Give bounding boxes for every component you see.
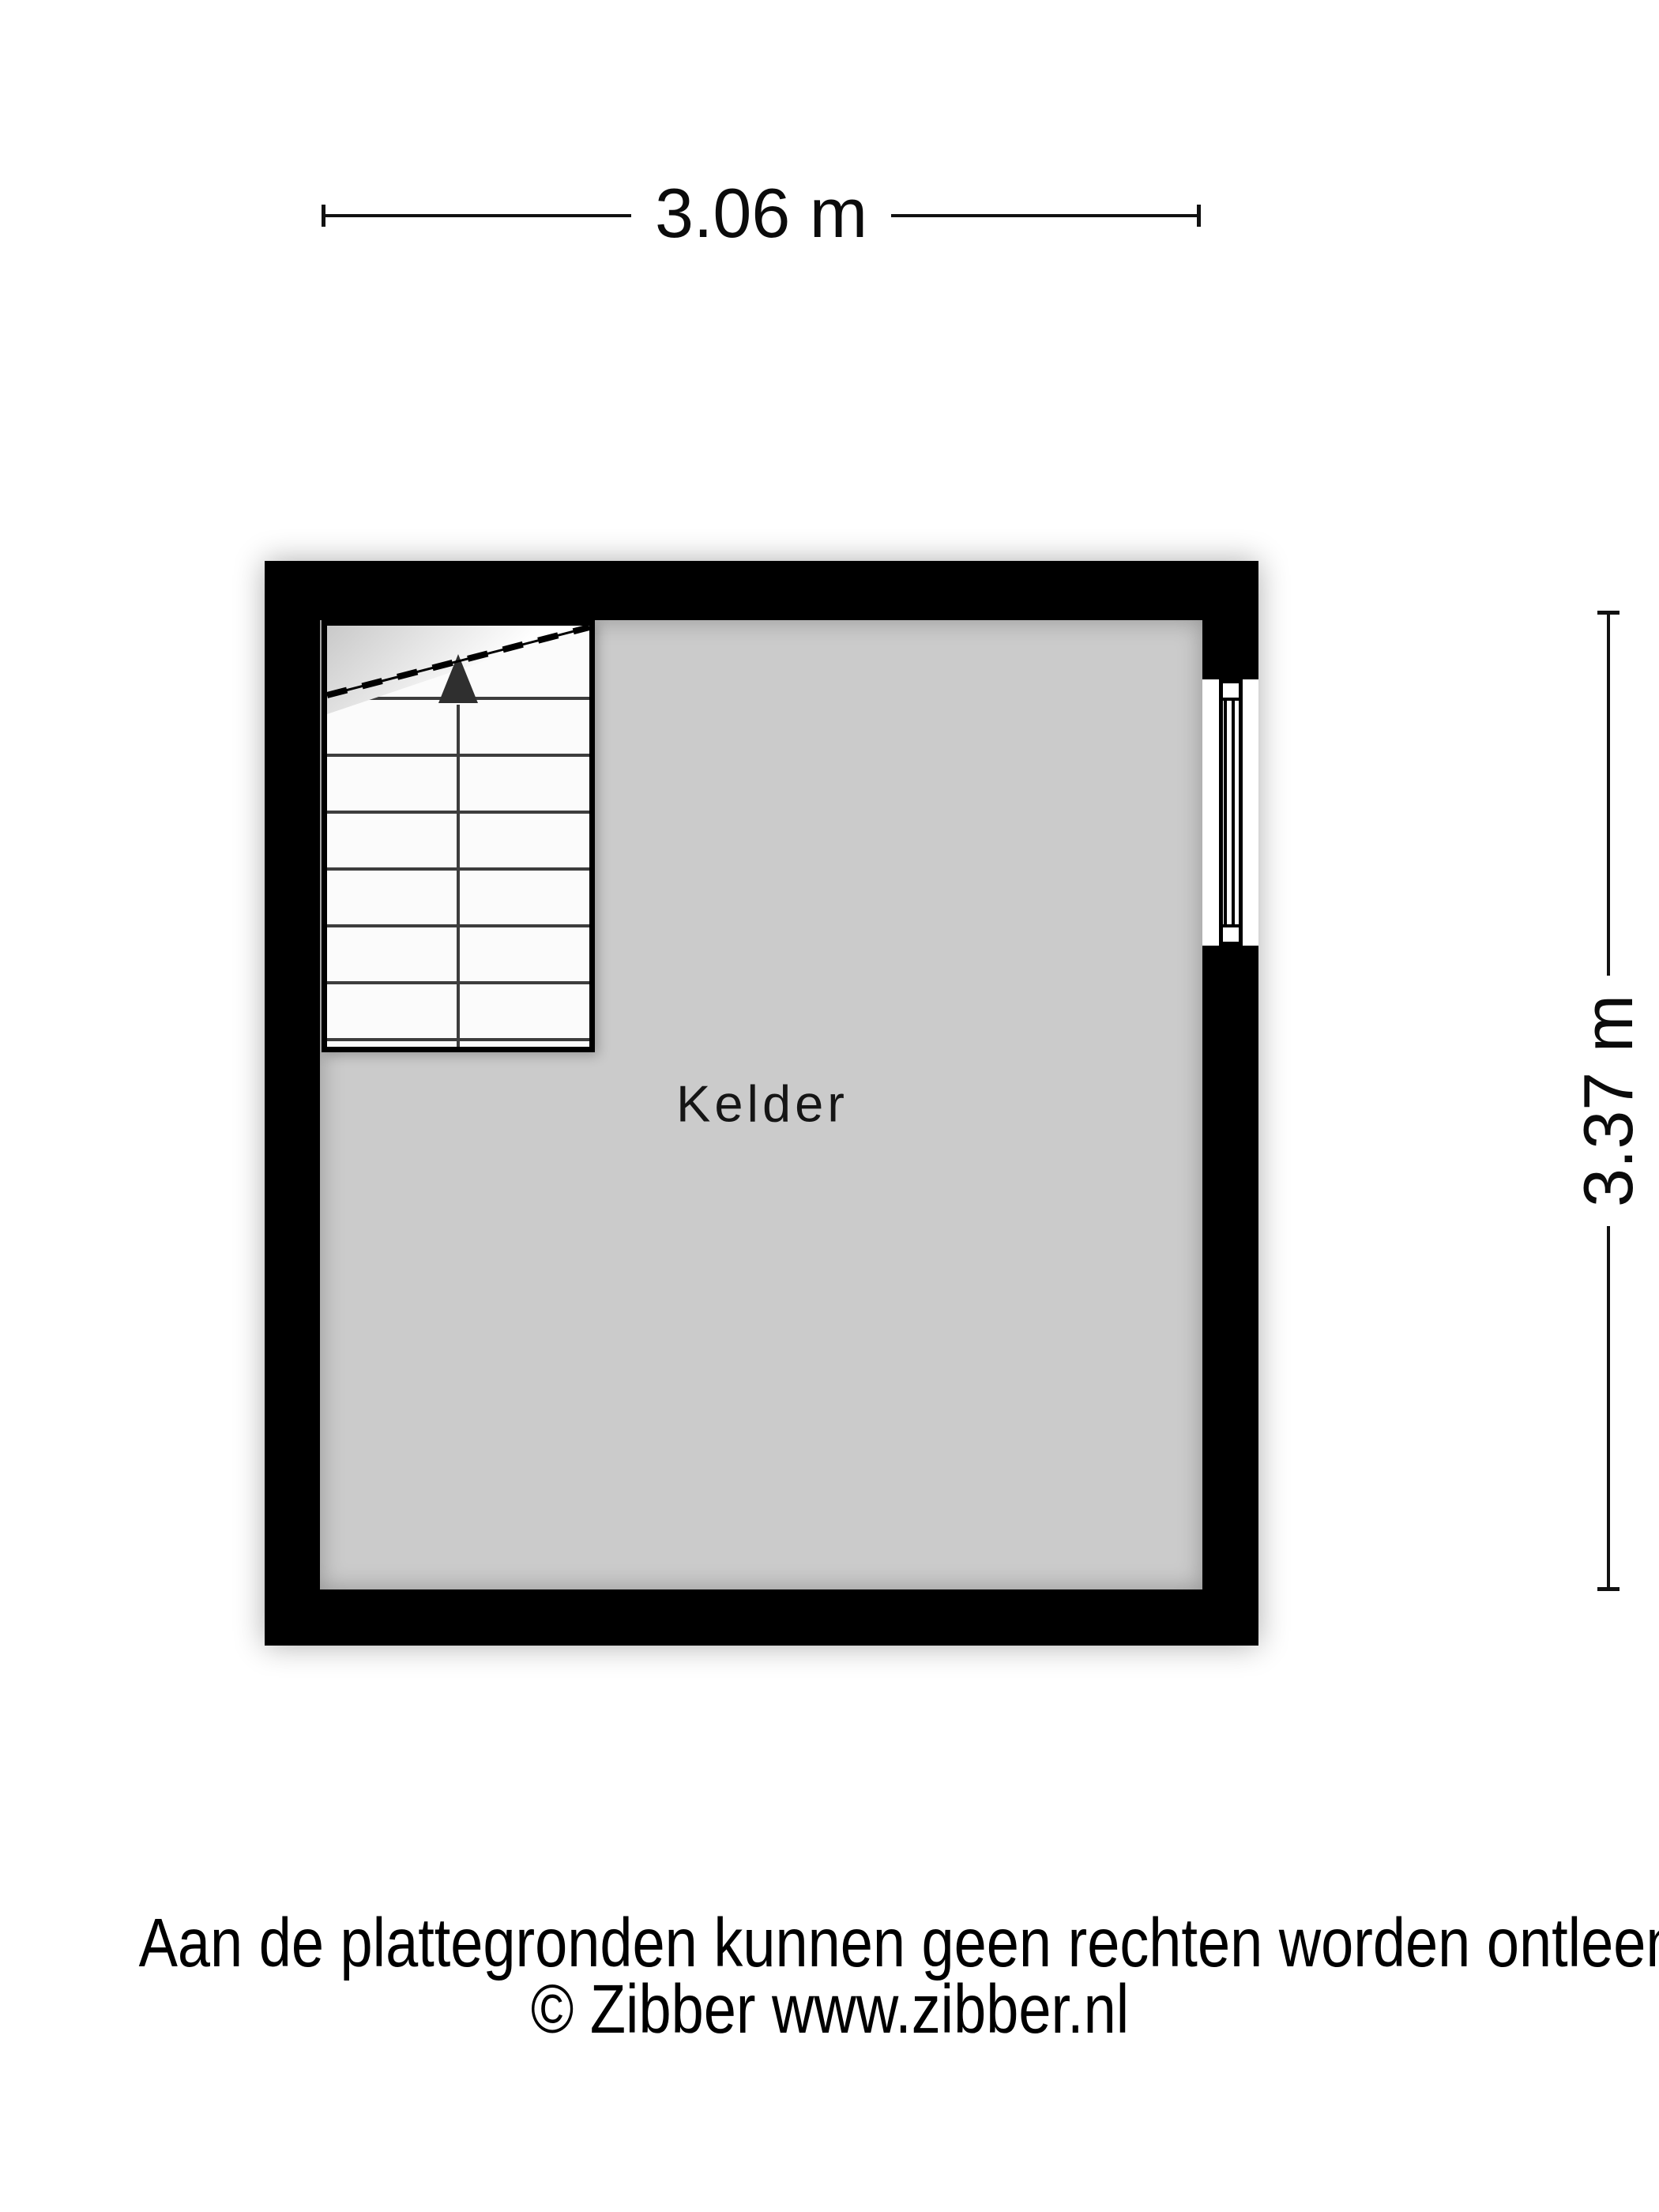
- dimension-line-segment: [891, 214, 1197, 217]
- width-dimension-label: 3.06 m: [631, 179, 891, 248]
- height-dimension: 3.37 m: [1574, 611, 1643, 1591]
- width-dimension: 3.06 m: [322, 182, 1201, 249]
- window-frame-bottom: [1222, 924, 1240, 927]
- dimension-line-segment: [1607, 615, 1610, 976]
- room-label: Kelder: [676, 1074, 848, 1134]
- dimension-line-segment: [1607, 1226, 1610, 1587]
- dimension-tick-right: [1197, 205, 1201, 227]
- window-panes: [1224, 701, 1238, 924]
- floorplan-page: 3.06 m Kelder: [0, 0, 1659, 2212]
- disclaimer-text: Aan de plattegronden kunnen geen rechten…: [0, 1910, 1659, 1977]
- staircase: [322, 620, 595, 1052]
- dimension-line-segment: [325, 214, 631, 217]
- dimension-tick-bottom: [1597, 1587, 1619, 1591]
- copyright-text: © Zibber www.zibber.nl: [0, 1977, 1659, 2043]
- floorplan: Kelder: [265, 561, 1258, 1646]
- height-dimension-label: 3.37 m: [1574, 995, 1643, 1207]
- window-opening: [1202, 679, 1258, 946]
- footer: Aan de plattegronden kunnen geen rechten…: [0, 1910, 1659, 2043]
- window-icon: [1219, 679, 1243, 946]
- stairs-cut-line: [327, 626, 589, 1047]
